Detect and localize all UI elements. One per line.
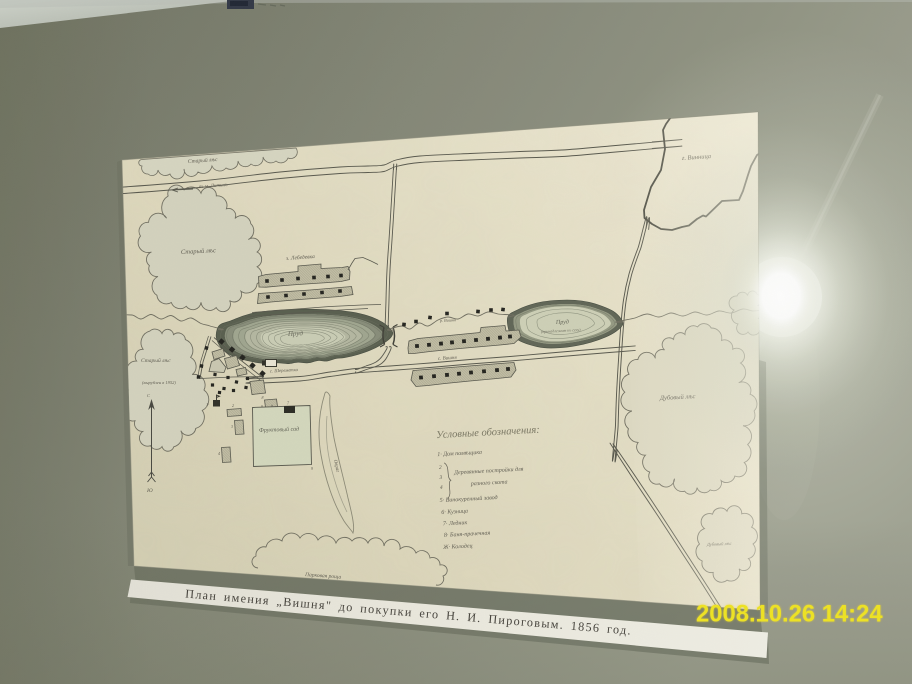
svg-text:2008.10.26 14:24: 2008.10.26 14:24	[696, 601, 883, 628]
